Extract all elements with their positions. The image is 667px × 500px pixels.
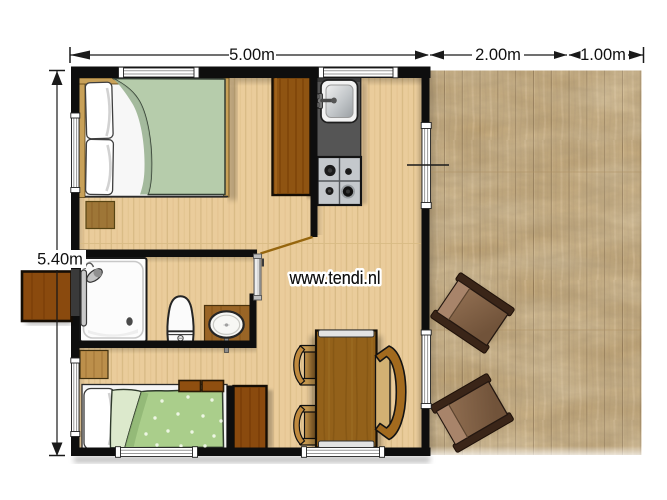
svg-text:1.00m: 1.00m bbox=[580, 46, 626, 64]
svg-text:5.40m: 5.40m bbox=[37, 251, 83, 269]
svg-text:www.tendi.nl: www.tendi.nl bbox=[289, 268, 381, 288]
svg-text:2.00m: 2.00m bbox=[475, 46, 521, 64]
svg-text:5.00m: 5.00m bbox=[229, 46, 275, 64]
